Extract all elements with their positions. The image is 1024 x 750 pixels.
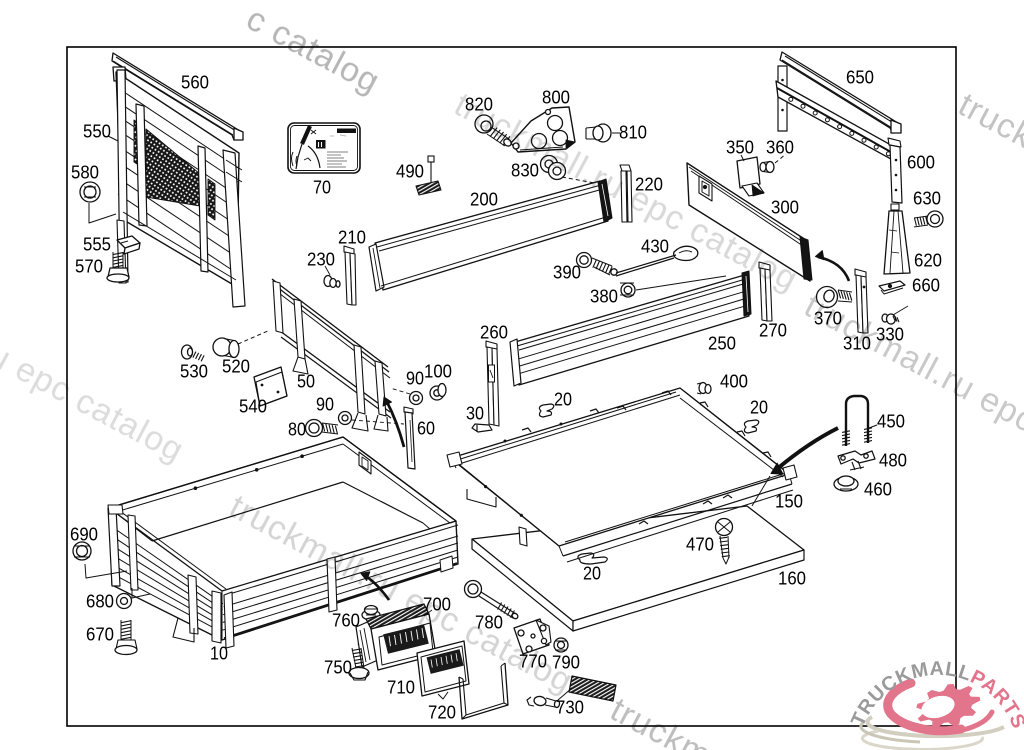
svg-text:480: 480 bbox=[879, 450, 907, 471]
svg-text:520: 520 bbox=[222, 356, 250, 377]
svg-text:490: 490 bbox=[396, 161, 424, 182]
svg-text:390: 390 bbox=[553, 262, 581, 283]
svg-text:60: 60 bbox=[417, 418, 435, 439]
svg-text:580: 580 bbox=[71, 162, 99, 183]
svg-text:750: 750 bbox=[324, 657, 352, 678]
svg-text:800: 800 bbox=[542, 87, 570, 108]
svg-text:20: 20 bbox=[583, 563, 601, 584]
svg-text:360: 360 bbox=[766, 137, 794, 158]
svg-text:760: 760 bbox=[332, 610, 360, 631]
svg-text:720: 720 bbox=[428, 702, 456, 723]
svg-text:470: 470 bbox=[686, 534, 714, 555]
svg-text:20: 20 bbox=[750, 397, 768, 418]
svg-text:620: 620 bbox=[914, 250, 942, 271]
svg-text:150: 150 bbox=[775, 491, 803, 512]
svg-text:230: 230 bbox=[307, 249, 335, 270]
svg-text:680: 680 bbox=[86, 591, 114, 612]
svg-text:690: 690 bbox=[70, 524, 98, 545]
svg-text:20: 20 bbox=[554, 389, 572, 410]
svg-text:270: 270 bbox=[759, 320, 787, 341]
svg-text:70: 70 bbox=[313, 177, 331, 198]
svg-text:210: 210 bbox=[338, 227, 366, 248]
svg-text:650: 650 bbox=[846, 67, 874, 88]
svg-text:600: 600 bbox=[907, 152, 935, 173]
svg-text:350: 350 bbox=[726, 137, 754, 158]
svg-text:570: 570 bbox=[75, 256, 103, 277]
svg-text:380: 380 bbox=[590, 286, 618, 307]
svg-text:460: 460 bbox=[864, 479, 892, 500]
svg-text:540: 540 bbox=[239, 396, 267, 417]
svg-text:250: 250 bbox=[708, 333, 736, 354]
svg-text:400: 400 bbox=[720, 371, 748, 392]
svg-text:660: 660 bbox=[912, 275, 940, 296]
svg-text:80: 80 bbox=[288, 419, 306, 440]
svg-text:810: 810 bbox=[619, 122, 647, 143]
svg-text:10: 10 bbox=[210, 643, 228, 664]
svg-text:450: 450 bbox=[877, 411, 905, 432]
svg-text:550: 550 bbox=[83, 121, 111, 142]
svg-text:670: 670 bbox=[86, 624, 114, 645]
svg-text:90: 90 bbox=[406, 368, 424, 389]
svg-text:260: 260 bbox=[480, 322, 508, 343]
svg-text:555: 555 bbox=[83, 234, 111, 255]
svg-text:160: 160 bbox=[778, 568, 806, 589]
svg-text:90: 90 bbox=[316, 394, 334, 415]
svg-text:100: 100 bbox=[424, 361, 452, 382]
svg-text:50: 50 bbox=[297, 371, 315, 392]
svg-text:430: 430 bbox=[641, 236, 669, 257]
svg-text:630: 630 bbox=[913, 188, 941, 209]
svg-text:300: 300 bbox=[771, 197, 799, 218]
svg-text:30: 30 bbox=[466, 403, 484, 424]
svg-text:200: 200 bbox=[470, 189, 498, 210]
svg-text:truckmall: truckmall bbox=[952, 86, 1024, 188]
svg-text:560: 560 bbox=[181, 72, 209, 93]
svg-text:710: 710 bbox=[387, 677, 415, 698]
svg-text:530: 530 bbox=[180, 361, 208, 382]
